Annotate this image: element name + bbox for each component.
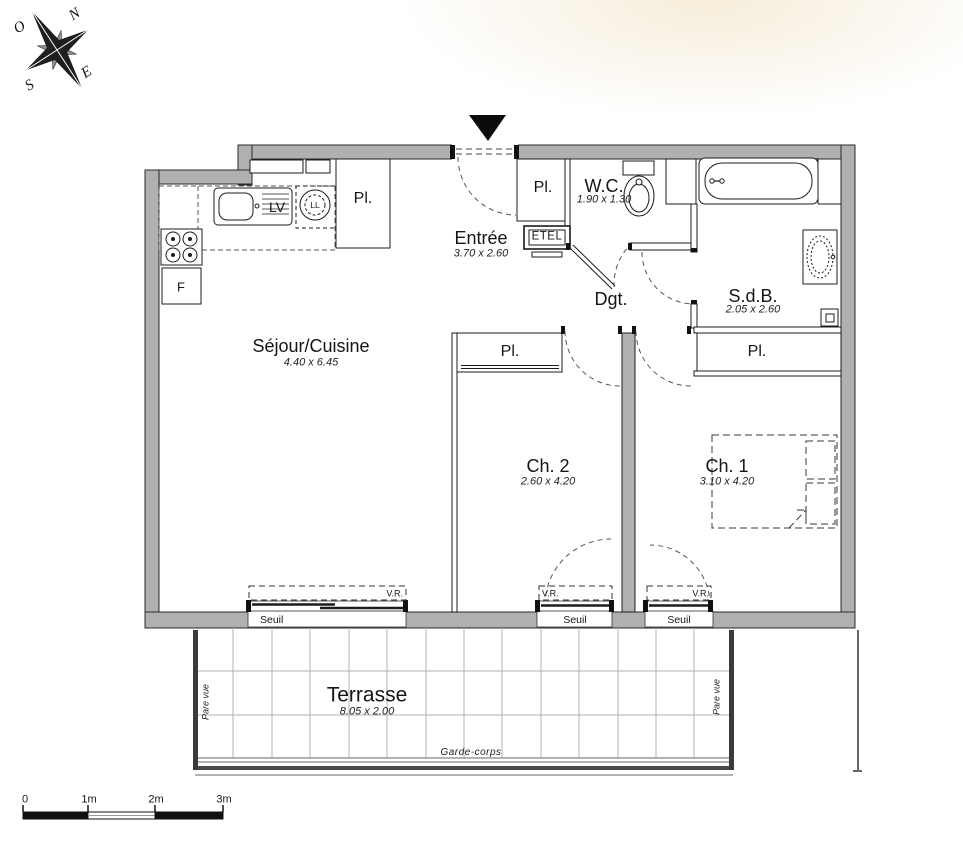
guardrail-label: Garde-corps — [440, 748, 501, 758]
scale-tick-3m: 3m — [216, 795, 231, 806]
room-label-ch1: Ch. 1 — [705, 457, 748, 475]
privacy-screen-left — [193, 630, 198, 770]
room-label-wc: W.C. — [585, 177, 624, 195]
terrace — [193, 628, 862, 775]
floor-plan-drawing — [0, 0, 963, 849]
door-jambs — [561, 243, 697, 334]
vent-duct-icon — [821, 309, 838, 326]
room-label-degagement: Dgt. — [594, 290, 627, 308]
fridge-label: F — [177, 281, 185, 294]
room-dims-sdb: 2.05 x 2.60 — [726, 305, 780, 316]
washbasin-icon — [803, 230, 837, 284]
privacy-screen-label-right: Pare vue — [713, 679, 722, 715]
room-label-terrasse: Terrasse — [327, 685, 408, 706]
privacy-screen-right — [729, 630, 734, 770]
terrace-grid — [195, 628, 733, 758]
cooktop-icon — [161, 229, 202, 265]
bathroom-fixtures — [694, 158, 841, 376]
entrance-door — [450, 144, 519, 215]
scale-bar-icon — [23, 805, 223, 819]
room-dims-terrasse: 8.05 x 2.00 — [340, 707, 394, 718]
shutter-label-ch2: V.R. — [542, 590, 559, 599]
scale-tick-1m: 1m — [81, 795, 96, 806]
room-dims-ch2: 2.60 x 4.20 — [521, 477, 575, 488]
room-dims-wc: 1.90 x 1.30 — [577, 195, 631, 206]
shutter-label-ch1: V.R. — [692, 590, 709, 599]
closet-sdb-box — [697, 333, 841, 371]
room-dims-sejour: 4.40 x 6.45 — [284, 358, 338, 369]
shutter-label-sejour: V.R. — [386, 590, 403, 599]
closet-label-kitchen: Pl. — [354, 191, 373, 207]
room-label-ch2: Ch. 2 — [526, 457, 569, 475]
entrance-arrow-icon — [469, 115, 506, 141]
privacy-screen-label-left: Pare vue — [202, 684, 211, 720]
wc-door-arc — [614, 247, 628, 287]
guardrail — [195, 758, 733, 775]
threshold-label-ch1: Seuil — [667, 615, 690, 626]
closet-label-entree: Pl. — [534, 180, 553, 196]
threshold-label-ch2: Seuil — [563, 615, 586, 626]
scale-tick-2m: 2m — [148, 795, 163, 806]
room-dims-entree: 3.70 x 2.60 — [454, 249, 508, 260]
ch1-door-arc — [636, 331, 691, 386]
etel-label: ETEL — [532, 231, 563, 243]
room-dims-ch1: 3.10 x 4.20 — [700, 477, 754, 488]
dishwasher-label: LV — [269, 200, 285, 214]
closet-label-ch2: Pl. — [501, 344, 520, 360]
bathtub-icon — [699, 158, 841, 204]
washing-machine-label: LL — [310, 201, 319, 210]
scale-tick-0: 0 — [22, 795, 28, 806]
sdb-door-arc — [642, 252, 694, 304]
toilet-icon — [623, 161, 654, 216]
floor-plan: N O E S Séjour/Cuisine 4.40 x 6.45 Entré… — [0, 0, 963, 849]
wc-door-leaf — [570, 245, 615, 289]
compass-rose-icon — [2, 0, 111, 107]
room-label-sdb: S.d.B. — [728, 287, 777, 305]
ch2-door-arc — [565, 331, 620, 386]
room-label-sejour: Séjour/Cuisine — [252, 337, 369, 355]
facade-line — [853, 630, 862, 771]
threshold-label-sejour: Seuil — [260, 615, 283, 626]
room-label-entree: Entrée — [454, 229, 507, 247]
closet-label-sdb: Pl. — [748, 344, 767, 360]
